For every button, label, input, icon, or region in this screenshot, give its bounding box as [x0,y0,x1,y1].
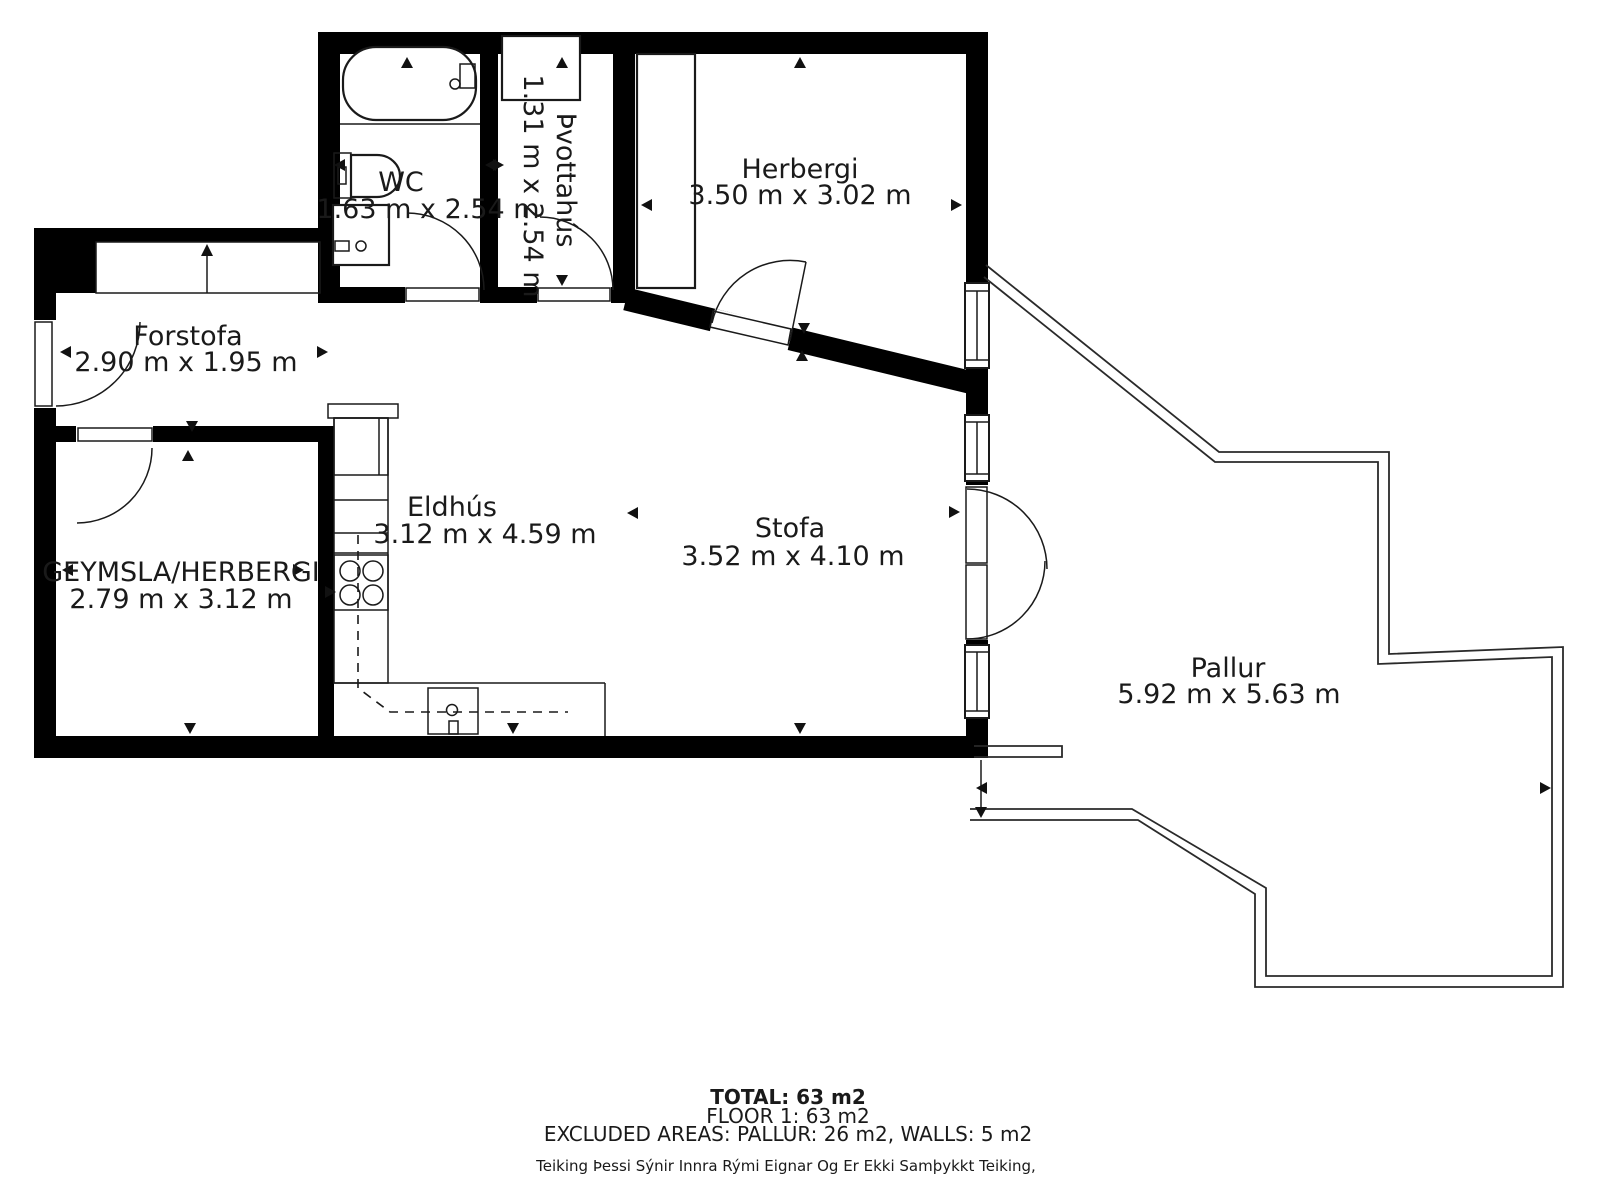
room-dims: 3.12 m x 4.59 m [373,519,596,550]
wc-door-icon [406,213,484,301]
summary-disclaimer: Teiking Þessi Sýnir Innra Rými Eignar Og… [535,1157,1036,1175]
room-label-storage: GEYMSLA/HERBERGI 2.79 m x 3.12 m [42,557,320,615]
fridge-icon [334,418,388,475]
room-label-living: Stofa 3.52 m x 4.10 m [681,513,904,572]
kitchen-counter [328,404,605,736]
room-label-wc: WC 1.63 m x 2.54 m [316,167,539,225]
deck-outline [970,265,1563,987]
room-dims: 1.63 m x 2.54 m [316,194,539,225]
floor-plan: WC 1.63 m x 2.54 m Þvottahús 1.31 m x 2.… [0,0,1600,1200]
room-dims: 2.90 m x 1.95 m [74,347,297,378]
summary-block: TOTAL: 63 m2 FLOOR 1: 63 m2 EXCLUDED ARE… [535,1085,1036,1175]
stove-icon [334,555,388,610]
kitchen-sink-icon [428,688,478,734]
closet-icon [96,242,320,293]
floor-plan-page: WC 1.63 m x 2.54 m Þvottahús 1.31 m x 2.… [0,0,1600,1200]
room-label-kitchen: Eldhús 3.12 m x 4.59 m [373,492,596,550]
bathtub-icon [340,47,480,124]
room-dims: 3.50 m x 3.02 m [688,180,911,211]
room-label-deck: Pallur 5.92 m x 5.63 m [1117,653,1340,710]
counter-dashed-line [358,535,568,712]
room-dims: 2.79 m x 3.12 m [69,584,292,615]
room-label-hall: Forstofa 2.90 m x 1.95 m [74,321,297,378]
walls [34,32,988,758]
room-dims: 5.92 m x 5.63 m [1117,679,1340,710]
wardrobe-icon [637,54,695,288]
room-label-bedroom: Herbergi 3.50 m x 3.02 m [688,154,911,211]
summary-excluded: EXCLUDED AREAS: PALLUR: 26 m2, WALLS: 5 … [544,1122,1032,1146]
room-dims: 1.31 m x 2.54 m [517,74,548,297]
room-dims: 3.52 m x 4.10 m [681,541,904,572]
room-name: Þvottahús [550,113,581,248]
room-label-laundry: Þvottahús 1.31 m x 2.54 m [517,74,581,297]
room-name: Stofa [755,513,825,544]
